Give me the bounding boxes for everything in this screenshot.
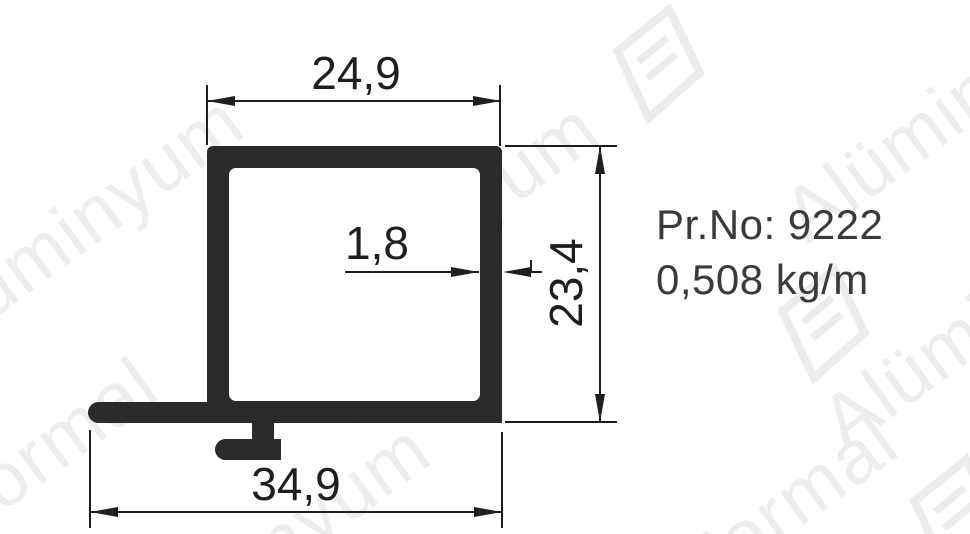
dim-arrow-up-icon bbox=[595, 146, 605, 174]
thickness-arrow-left-icon bbox=[503, 267, 531, 277]
dim-arrow-left-icon bbox=[90, 507, 118, 517]
product-weight: 0,508 kg/m bbox=[656, 253, 883, 308]
profile-bottom-flange bbox=[88, 402, 502, 423]
ext-line-top-left bbox=[206, 85, 208, 145]
dim-arrow-left-icon bbox=[207, 96, 235, 106]
thickness-arrow-right-icon bbox=[451, 267, 479, 277]
ext-line-top-right bbox=[499, 85, 501, 146]
dim-arrow-right-icon bbox=[473, 96, 501, 106]
profile-hook-leg bbox=[215, 439, 281, 460]
dim-line-bottom bbox=[90, 511, 502, 513]
drawing-canvas: Alüminyum Formal Alüminyum Alüminyum Alü… bbox=[0, 0, 970, 534]
dim-label-right-height: 23,4 bbox=[543, 238, 589, 328]
dim-label-top-width: 24,9 bbox=[311, 50, 401, 96]
dim-label-bottom-width: 34,9 bbox=[251, 461, 341, 507]
dim-line-top bbox=[207, 100, 501, 102]
dim-arrow-right-icon bbox=[474, 507, 502, 517]
profile-hollow-cavity bbox=[229, 168, 480, 401]
dim-arrow-down-icon bbox=[595, 394, 605, 422]
dim-line-right bbox=[599, 146, 601, 422]
product-number: Pr.No: 9222 bbox=[656, 198, 883, 253]
watermark-text: Formal bbox=[0, 340, 174, 534]
watermark-logo-icon bbox=[594, 0, 715, 133]
dim-label-wall-thickness: 1,8 bbox=[345, 220, 409, 266]
product-info: Pr.No: 9222 0,508 kg/m bbox=[656, 198, 883, 307]
